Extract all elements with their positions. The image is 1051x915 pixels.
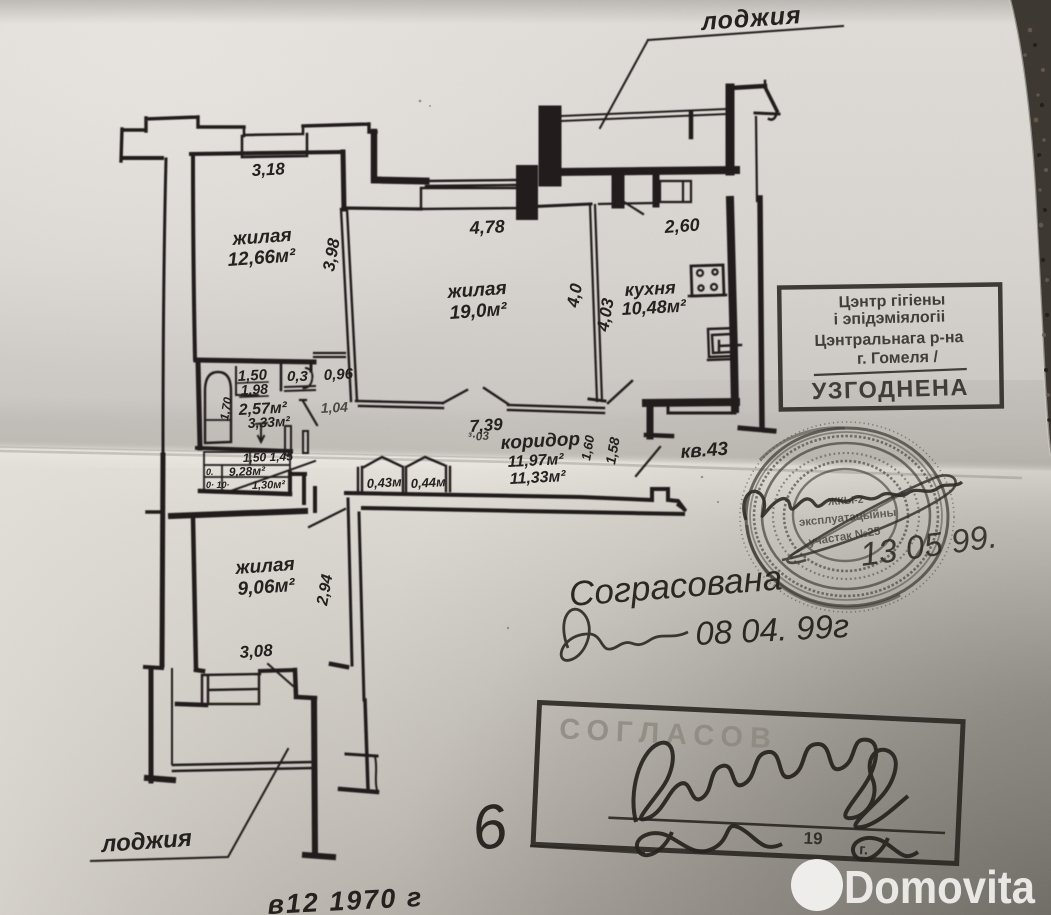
- svg-text:9,06м²: 9,06м²: [237, 575, 296, 600]
- svg-text:3,08: 3,08: [239, 641, 274, 662]
- svg-text:0,3: 0,3: [287, 368, 309, 385]
- svg-text:0· 10·: 0· 10·: [206, 480, 230, 490]
- svg-text:Domovita: Domovita: [844, 861, 1035, 913]
- svg-text:г. Гомеля /: г. Гомеля /: [857, 349, 939, 368]
- svg-text:11,33м²: 11,33м²: [509, 468, 566, 488]
- svg-text:1,04: 1,04: [320, 399, 348, 416]
- svg-text:УЗГОДНЕНА: УЗГОДНЕНА: [811, 374, 969, 404]
- svg-text:г.: г.: [859, 841, 869, 858]
- svg-text:0,44м: 0,44м: [410, 474, 446, 491]
- svg-text:0,43м: 0,43м: [366, 474, 402, 491]
- svg-text:1,50 1,45: 1,50 1,45: [243, 449, 294, 465]
- svg-text:4,78: 4,78: [468, 216, 505, 238]
- svg-text:кв.43: кв.43: [680, 439, 729, 463]
- svg-text:коридор: коридор: [500, 429, 580, 454]
- svg-text:³·03: ³·03: [467, 429, 490, 444]
- svg-text:3,18: 3,18: [251, 159, 286, 180]
- svg-text:1,30м²: 1,30м²: [252, 479, 286, 492]
- svg-text:0,96: 0,96: [323, 365, 354, 384]
- svg-text:1,98: 1,98: [240, 381, 268, 398]
- svg-text:19,0м²: 19,0м²: [449, 299, 508, 324]
- svg-text:0.: 0.: [206, 467, 214, 477]
- svg-text:9,28м²: 9,28м²: [229, 464, 267, 479]
- svg-text:10,48м²: 10,48м²: [621, 296, 687, 319]
- svg-text:і эпідэміялогіі: і эпідэміялогіі: [833, 309, 945, 329]
- svg-text:19: 19: [803, 829, 823, 849]
- svg-text:2,60: 2,60: [663, 215, 700, 237]
- svg-text:3,33м²: 3,33м²: [247, 413, 290, 431]
